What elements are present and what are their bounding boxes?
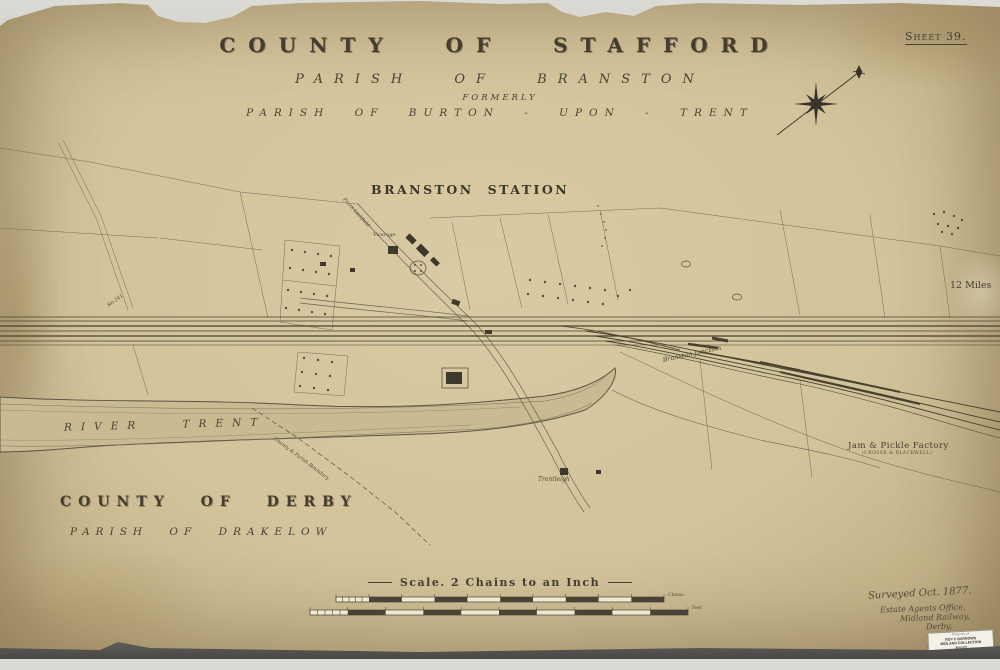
county-derby-title: COUNTY OF DERBY: [60, 494, 340, 510]
vicarage-label: Vicarage: [373, 232, 395, 238]
roads: [300, 203, 1000, 512]
scale-caption: Scale. 2 Chains to an Inch: [0, 576, 1000, 589]
orchard-tree-dots: [286, 212, 962, 390]
scanned-map-page: { "sheet": { "label": "Sheet 39." }, "ti…: [0, 0, 1000, 659]
jam-pickle-factory-label: Jam & Pickle Factory: [848, 441, 949, 451]
map-paper: COUNTY OF STAFFORD PARISH OF BRANSTON FO…: [0, 0, 1000, 659]
ponds: [410, 261, 742, 300]
branston-station-label: BRANSTON STATION: [371, 182, 569, 197]
former-parish-title: PARISH OF BURTON - UPON - TRENT: [0, 107, 1000, 119]
parish-drakelow-title: PARISH OF DRAKELOW: [70, 526, 330, 538]
scale-chains-unit: Chains: [668, 593, 684, 598]
scale-dash-left: [368, 582, 392, 583]
parish-branston-title: PARISH OF BRANSTON: [0, 72, 1000, 87]
footpath-dots: [598, 206, 606, 246]
county-stafford-title: COUNTY OF STAFFORD: [0, 33, 1000, 57]
collection-sticker: Property of ROY F BURROWS MIDLAND COLLEC…: [927, 629, 994, 660]
scale-title: Scale. 2 Chains to an Inch: [400, 576, 600, 589]
sticker-trust: TRUST: [955, 645, 967, 650]
scale-dash-right: [608, 582, 632, 583]
scale-feet-unit: Feet: [692, 606, 702, 611]
trentleigh-label: Trentleigh: [538, 476, 570, 483]
railway-main-line: [0, 317, 1000, 345]
railway-branch-line: [560, 326, 1000, 438]
buildings: [320, 233, 601, 475]
sticker-item-number: Item No. 96040: [943, 650, 979, 657]
derby-line: Derby.: [926, 622, 952, 632]
river-trent-water: [0, 368, 880, 468]
sheet-number: Sheet 39.: [905, 30, 967, 45]
scale-bars: [310, 594, 688, 615]
crosse-blackwell-label: (CROSSE & BLACKWELL): [862, 451, 932, 456]
mileage-label: 12 Miles: [950, 280, 991, 291]
formerly-label: FORMERLY: [0, 93, 1000, 103]
